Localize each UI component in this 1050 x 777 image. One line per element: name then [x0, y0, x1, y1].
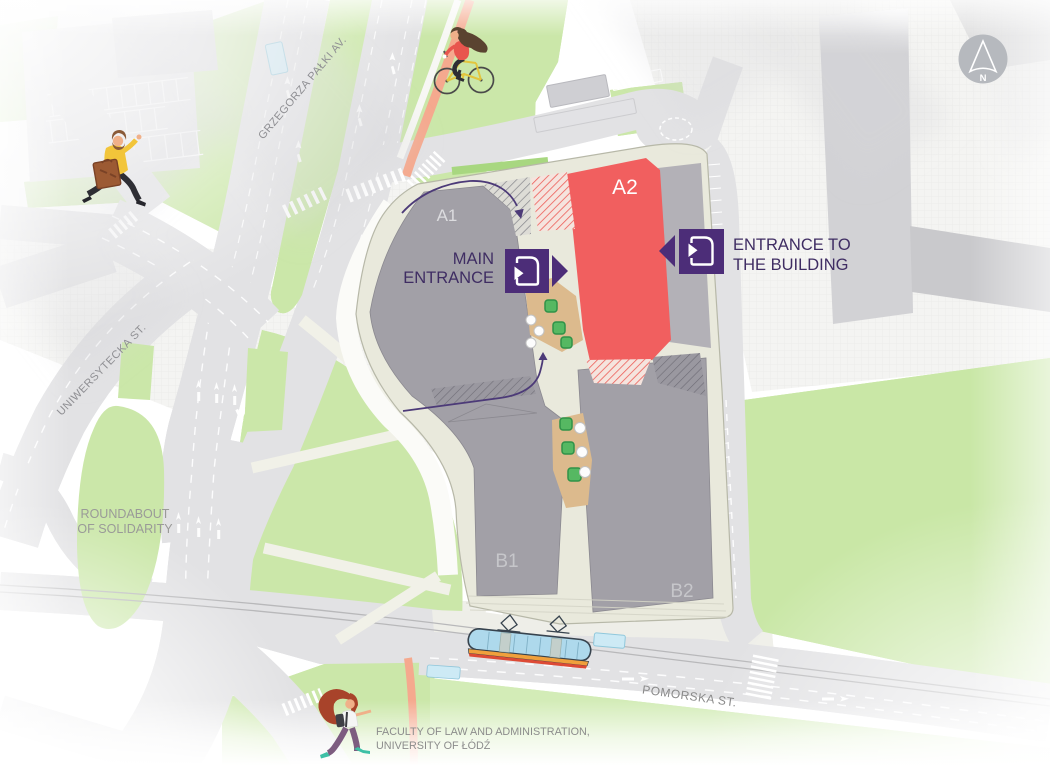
svg-text:ENTRANCE: ENTRANCE — [403, 269, 494, 287]
svg-text:UNIVERSITY OF ŁÓDŹ: UNIVERSITY OF ŁÓDŹ — [376, 739, 491, 752]
svg-text:ENTRANCE TO: ENTRANCE TO — [733, 236, 851, 254]
svg-text:ROUNDABOUT: ROUNDABOUT — [81, 507, 170, 521]
svg-text:B1: B1 — [495, 551, 518, 572]
svg-text:THE BUILDING: THE BUILDING — [733, 256, 849, 274]
svg-text:A2: A2 — [612, 176, 638, 199]
svg-text:MAIN: MAIN — [453, 250, 494, 268]
svg-text:B2: B2 — [670, 581, 693, 602]
svg-text:A1: A1 — [437, 206, 458, 225]
svg-text:FACULTY OF LAW AND ADMINISTRAT: FACULTY OF LAW AND ADMINISTRATION, — [376, 726, 590, 738]
svg-text:N: N — [980, 73, 987, 84]
svg-text:OF SOLIDARITY: OF SOLIDARITY — [77, 522, 173, 536]
